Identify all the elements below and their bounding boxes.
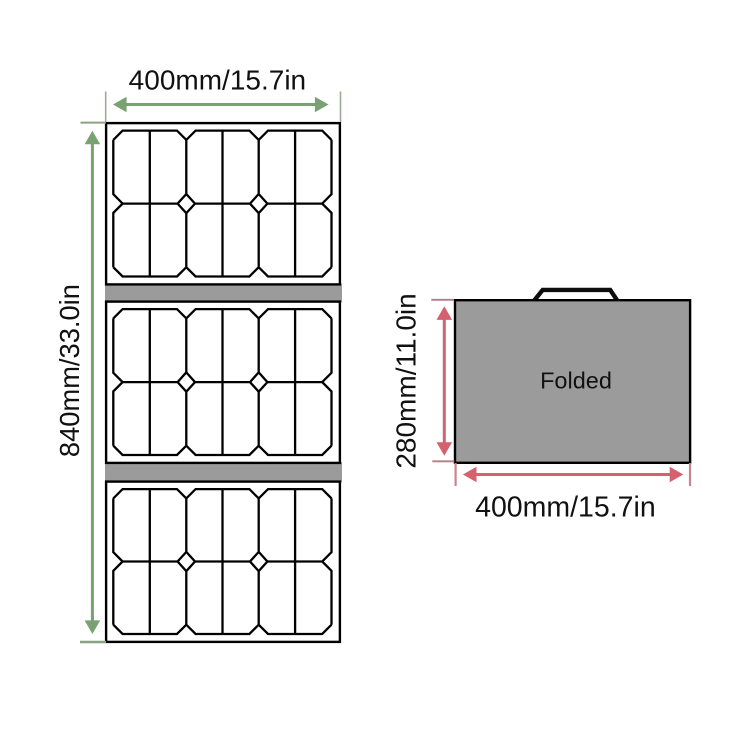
svg-text:400mm/15.7in: 400mm/15.7in xyxy=(129,65,306,96)
svg-text:400mm/15.7in: 400mm/15.7in xyxy=(475,492,656,524)
svg-text:840mm/33.0in: 840mm/33.0in xyxy=(54,284,85,457)
svg-text:Folded: Folded xyxy=(540,368,612,394)
svg-text:280mm/11.0in: 280mm/11.0in xyxy=(391,293,422,468)
